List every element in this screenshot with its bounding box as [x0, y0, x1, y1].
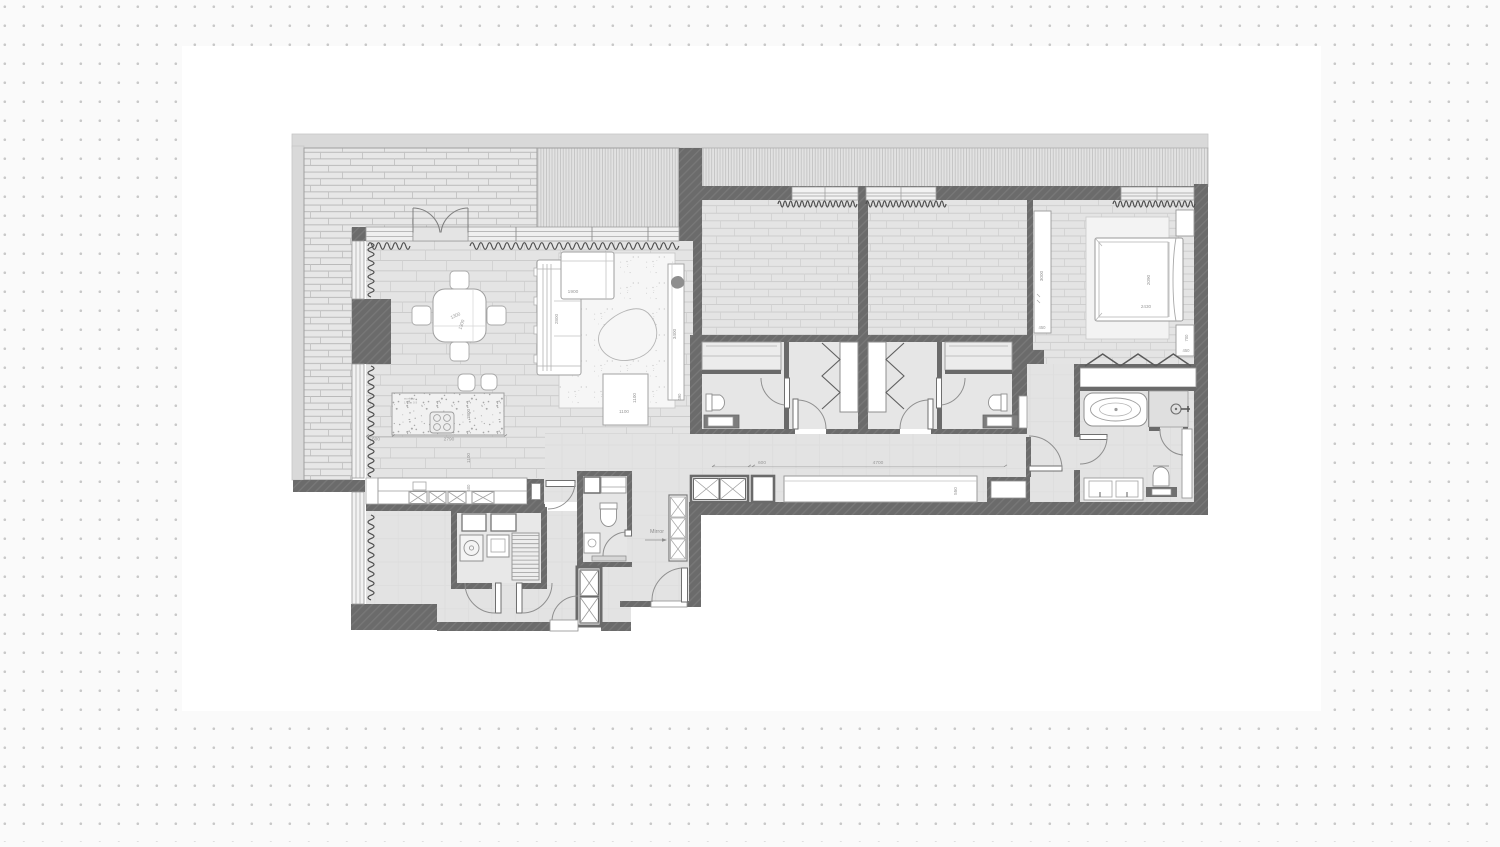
- svg-text:600: 600: [466, 484, 471, 492]
- svg-text:1100: 1100: [632, 393, 637, 403]
- svg-text:1900: 1900: [568, 289, 579, 295]
- svg-text:2430: 2430: [1141, 304, 1152, 309]
- svg-text:2790: 2790: [444, 437, 455, 443]
- svg-text:550: 550: [953, 487, 958, 495]
- svg-text:450: 450: [1039, 325, 1047, 330]
- svg-text:1.75 x 0.9: 1.75 x 0.9: [404, 401, 418, 405]
- svg-text:450: 450: [1183, 348, 1191, 353]
- svg-text:2090: 2090: [1146, 274, 1151, 285]
- svg-text:600: 600: [372, 437, 380, 443]
- svg-text:490: 490: [677, 393, 682, 401]
- svg-text:1100: 1100: [466, 453, 471, 463]
- svg-text:700: 700: [1184, 334, 1189, 342]
- svg-text:Mirror: Mirror: [650, 529, 664, 535]
- svg-text:4700: 4700: [873, 460, 884, 466]
- svg-text:600: 600: [758, 460, 766, 466]
- svg-text:3000: 3000: [1039, 270, 1044, 281]
- svg-text:1800: 1800: [466, 408, 471, 419]
- svg-text:1100: 1100: [619, 409, 629, 414]
- svg-text:3400: 3400: [672, 328, 677, 339]
- svg-text:2800: 2800: [554, 313, 559, 324]
